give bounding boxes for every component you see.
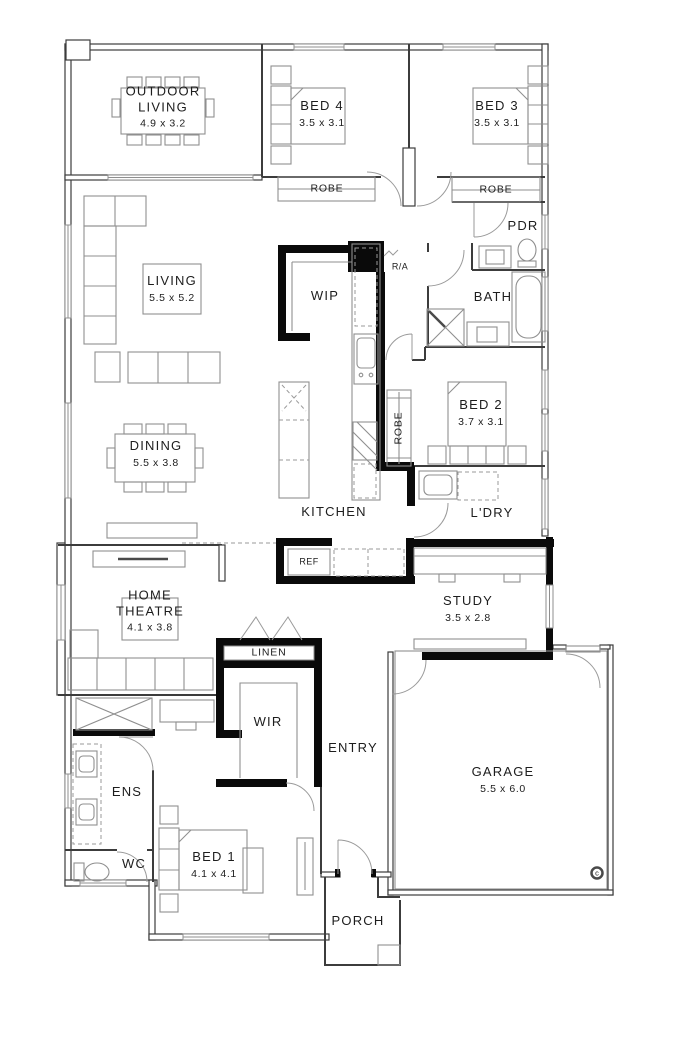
room-label-entry: ENTRY: [328, 738, 378, 758]
room-dims: 4.1 x 4.1: [191, 868, 237, 881]
ens-shower: [76, 698, 152, 730]
return-air-label: R/A: [392, 261, 408, 272]
fridge-label: REF: [299, 556, 318, 567]
room-dims: 3.5 x 3.1: [299, 117, 345, 130]
room-name: GARAGE: [472, 764, 535, 779]
room-label-wir: WIR: [254, 712, 283, 732]
living-sofa: [84, 196, 146, 344]
room-dims: 4.9 x 3.2: [120, 117, 206, 130]
ens-door-arc: [119, 737, 153, 771]
room-label-kitchen: KITCHEN: [301, 502, 366, 522]
pdr-basin: [479, 246, 511, 268]
return-air-duct: [348, 241, 384, 272]
room-label-pdr: PDR: [507, 216, 538, 236]
pdr-toilet: [518, 239, 536, 267]
coffee-table: [128, 352, 220, 383]
laundry-sink: [419, 471, 457, 499]
linen-bifold-doors: [240, 617, 302, 640]
sideboard: [107, 523, 197, 538]
study-door-arc: [392, 660, 426, 694]
room-name: PDR: [507, 218, 538, 233]
room-dims: 5.5 x 6.0: [472, 783, 535, 796]
room-name: WIP: [311, 288, 339, 303]
kitchen-bench: [352, 244, 380, 500]
room-label-ens: ENS: [112, 782, 142, 802]
kitchen-island: [279, 382, 309, 498]
room-label-living: LIVING 5.5 x 5.2: [147, 271, 197, 305]
plan-linework: [0, 0, 700, 1045]
room-label-bed4: BED 4 3.5 x 3.1: [299, 96, 345, 130]
room-name: ENTRY: [328, 740, 378, 755]
room-dims: 3.5 x 3.1: [474, 117, 520, 130]
room-label-bath: BATH: [474, 287, 513, 307]
ht-sofa: [68, 630, 213, 690]
study-desk: [414, 548, 546, 582]
room-dims: 5.5 x 3.8: [130, 457, 183, 470]
bath-shower: [427, 309, 464, 346]
study-shelf: [414, 639, 526, 649]
room-name: KITCHEN: [301, 504, 366, 519]
ldry-door-arc: [414, 503, 448, 537]
entry-door-arc: [338, 840, 372, 874]
room-dims: 4.1 x 3.8: [114, 621, 186, 634]
room-name: DINING: [130, 438, 183, 453]
robe-label-bed2: ROBE: [392, 412, 405, 445]
room-name: L'DRY: [471, 505, 514, 520]
room-dims: 3.7 x 3.1: [458, 416, 504, 429]
ens-vanity: [73, 744, 101, 844]
cooktop: [354, 334, 378, 384]
wir-door-arc: [286, 783, 314, 811]
room-name: BED 1: [192, 849, 236, 864]
room-name: ENS: [112, 784, 142, 799]
room-name: WIR: [254, 714, 283, 729]
copyright-mark: c: [595, 868, 599, 877]
room-label-wc: WC: [122, 854, 146, 874]
room-dims: 5.5 x 5.2: [147, 292, 197, 305]
bath-door-arc: [428, 250, 464, 286]
laundry-bench: [458, 472, 498, 500]
room-label-bed2: BED 2 3.7 x 3.1: [458, 395, 504, 429]
room-name: WC: [122, 856, 146, 871]
room-label-bed1: BED 1 4.1 x 4.1: [191, 847, 237, 881]
bed2-door-arc: [386, 334, 412, 360]
room-label-home-theatre: HOME THEATRE 4.1 x 3.8: [114, 588, 186, 635]
room-name: HOME THEATRE: [114, 588, 186, 621]
pdr-door-arc: [474, 203, 508, 237]
side-table: [95, 352, 120, 382]
room-name: STUDY: [443, 593, 493, 608]
bathtub: [512, 272, 545, 342]
hall-cupboard: [160, 700, 214, 730]
room-label-linen: LINEN: [252, 646, 287, 659]
room-name: BED 4: [300, 98, 344, 113]
oven: [353, 422, 377, 470]
robe-label-bed3: ROBE: [480, 183, 513, 196]
room-label-study: STUDY 3.5 x 2.8: [443, 591, 493, 625]
room-name: BATH: [474, 289, 513, 304]
room-name: OUTDOOR LIVING: [120, 84, 206, 117]
bath-vanity: [467, 322, 509, 346]
room-label-dining: DINING 5.5 x 3.8: [130, 436, 183, 470]
room-label-garage: GARAGE 5.5 x 6.0: [472, 762, 535, 796]
floor-plan: OUTDOOR LIVING 4.9 x 3.2 BED 4 3.5 x 3.1…: [0, 0, 700, 1045]
room-label-wip: WIP: [311, 286, 339, 306]
room-name: BED 3: [475, 98, 519, 113]
tv-unit: [93, 551, 185, 567]
kitchen-bench-2: [334, 549, 404, 576]
garage-access-door-arc: [566, 654, 600, 688]
room-label-ldry: L'DRY: [471, 503, 514, 523]
room-dims: 3.5 x 2.8: [443, 612, 493, 625]
room-name: PORCH: [332, 913, 385, 928]
robe-label-bed4: ROBE: [311, 182, 344, 195]
room-name: BED 2: [459, 397, 503, 412]
return-air-leader: [384, 250, 398, 256]
room-label-bed3: BED 3 3.5 x 3.1: [474, 96, 520, 130]
room-label-porch: PORCH: [332, 911, 385, 931]
room-label-outdoor-living: OUTDOOR LIVING 4.9 x 3.2: [120, 84, 206, 131]
wc-toilet: [74, 863, 109, 881]
room-name: LIVING: [147, 273, 197, 288]
